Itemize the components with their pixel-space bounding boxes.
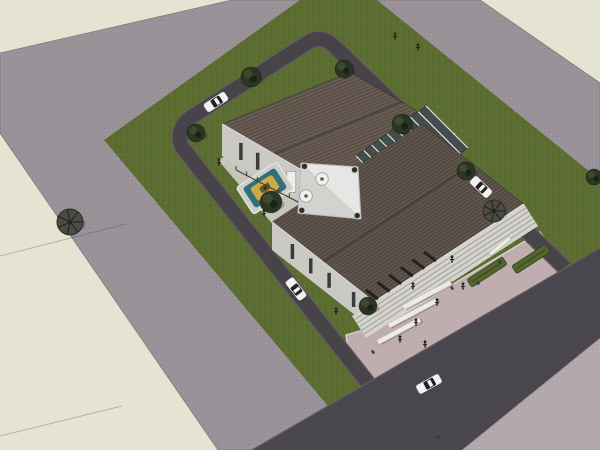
person-head <box>263 209 266 212</box>
person-head <box>394 32 397 35</box>
tree-texture <box>367 305 373 311</box>
tree-texture <box>401 123 408 130</box>
table-center <box>304 194 308 198</box>
person-head <box>399 335 402 338</box>
canopy-node <box>351 167 357 173</box>
person-head <box>462 282 465 285</box>
person-head <box>417 43 420 46</box>
tree-texture <box>343 68 349 74</box>
site-plan-render <box>0 0 600 450</box>
tree-texture <box>465 170 471 176</box>
person-head <box>412 282 415 285</box>
table-center <box>320 177 324 181</box>
canopy-node <box>299 207 305 213</box>
person-head <box>436 298 439 301</box>
hall-south-window <box>291 244 295 259</box>
tree-texture <box>195 132 201 138</box>
tree-texture <box>593 176 599 182</box>
person-head <box>451 255 454 258</box>
round-tree <box>586 169 600 185</box>
tree-trunk <box>69 221 72 224</box>
hall-north-window <box>256 153 260 170</box>
tree-trunk <box>493 210 496 213</box>
hall-south-window <box>327 273 331 288</box>
person-head <box>218 158 221 161</box>
tree-texture <box>250 76 257 83</box>
hall-north-window <box>239 143 243 160</box>
person-head <box>335 307 338 310</box>
canopy-node <box>354 212 360 218</box>
render-canvas <box>0 0 600 450</box>
person-head <box>424 340 427 343</box>
hall-south-window <box>352 292 356 307</box>
canopy-node <box>301 163 307 169</box>
tree-texture <box>270 200 278 208</box>
person-head <box>415 318 418 321</box>
hall-south-window <box>309 258 313 273</box>
